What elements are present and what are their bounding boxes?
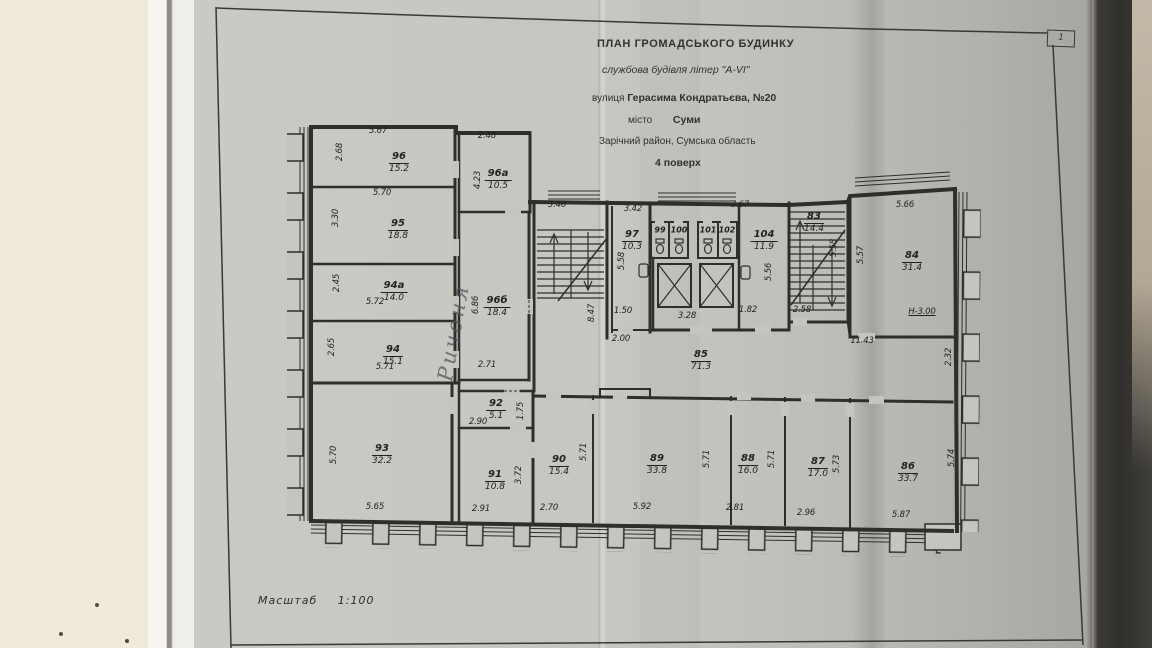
room-label: 8933.8 xyxy=(647,448,667,476)
dimension-label: 2.32 xyxy=(944,348,954,366)
dimension-label: 2.58 xyxy=(793,305,811,315)
dimension-label: 3.42 xyxy=(624,204,642,214)
wc-stall-number: 100 xyxy=(671,226,688,235)
dimension-label: 1.75 xyxy=(516,402,526,420)
dimension-label: 2.68 xyxy=(335,143,345,161)
dimension-label: 5.71 xyxy=(702,450,712,468)
dimension-label: 3.28 xyxy=(678,311,696,321)
dimension-label: 2.48 xyxy=(478,131,496,141)
dimension-label: 5.67 xyxy=(369,126,387,136)
room-label: 9710.3 xyxy=(622,224,642,252)
scale-value: 1:100 xyxy=(338,594,375,607)
dimension-label: 2.65 xyxy=(327,338,337,356)
dimension-label: 5.70 xyxy=(329,446,339,464)
dimension-label: 5.71 xyxy=(376,362,394,372)
room-label: 96б18.4 xyxy=(484,290,511,318)
dimension-label: 2.81 xyxy=(726,503,744,513)
dimension-label: 3.67 xyxy=(731,200,749,210)
dimension-label: 2.70 xyxy=(540,503,558,513)
dimension-label: 2.45 xyxy=(332,274,342,292)
dimension-label: 11.43 xyxy=(850,336,873,346)
plan-title: ПЛАН ГРОМАДСЬКОГО БУДИНКУ xyxy=(597,38,794,50)
wc-stall-number: 102 xyxy=(719,226,736,235)
dimension-label: 5.66 xyxy=(896,200,914,210)
room-label: 9110.8 xyxy=(485,464,505,492)
dimension-label: 8.47 xyxy=(587,304,597,322)
dimension-label: 3.72 xyxy=(514,466,524,484)
dimension-label: 5.71 xyxy=(579,443,589,461)
dimension-label: 3.30 xyxy=(331,209,341,227)
dimension-label: 5.58 xyxy=(617,252,627,270)
city-value: Суми xyxy=(673,114,701,126)
wc-stall-number: 101 xyxy=(700,226,717,235)
room-label: 8717.0 xyxy=(808,451,828,479)
city-label: місто xyxy=(628,115,652,126)
room-label: 9015.4 xyxy=(549,449,569,477)
dimension-label: 5.56 xyxy=(764,263,774,281)
dimension-label: 5.74 xyxy=(947,449,957,467)
dimension-label: 1.82 xyxy=(739,305,757,315)
room-label: 8571.3 xyxy=(691,344,711,372)
dimension-label: 6.86 xyxy=(471,296,481,314)
dimension-label: 5.65 xyxy=(366,502,384,512)
scale-label: Масштаб xyxy=(258,594,317,607)
room-label: 8431.4 xyxy=(902,245,922,273)
dimension-label: 5.72 xyxy=(366,297,384,307)
wc-stall-number: 99 xyxy=(654,226,665,235)
room-label: 8816.0 xyxy=(738,448,758,476)
room-label: 96а10.5 xyxy=(485,163,512,191)
room-label: 8633.7 xyxy=(898,456,918,484)
room-label: 94а14.0 xyxy=(381,275,408,303)
dimension-label: 4.23 xyxy=(473,171,483,189)
street-value: Герасима Кондратьєва, №20 xyxy=(627,92,776,104)
dimension-label: 5.70 xyxy=(373,188,391,198)
dimension-label: 5.92 xyxy=(633,502,651,512)
room-label: 10411.9 xyxy=(751,224,778,252)
dimension-label: Н-3.00 xyxy=(908,307,935,317)
floor-line: 4 поверх xyxy=(655,157,701,169)
dimension-label: 2.96 xyxy=(797,508,815,518)
district-line: Зарічний район, Сумська область xyxy=(599,136,756,147)
dimension-label: 5.87 xyxy=(892,510,910,520)
dimension-label: 2.00 xyxy=(612,334,630,344)
plan-labels: 9615.29518.894а14.09415.19332.296а10.596… xyxy=(0,0,1152,648)
room-label: 8314.4 xyxy=(804,206,824,234)
dimension-label: 2.71 xyxy=(478,360,496,370)
dimension-label: 2.91 xyxy=(472,504,490,514)
sheet-corner-number: 1 xyxy=(1047,30,1076,48)
dimension-label: 1.50 xyxy=(614,306,632,316)
dimension-label: 5.57 xyxy=(856,246,866,264)
dimension-label: 3.40 xyxy=(548,200,566,210)
building-subtitle: службова будівля літер "А-VI" xyxy=(602,64,750,76)
dimension-label: 5.73 xyxy=(832,455,842,473)
street-label: вулиця xyxy=(592,93,624,104)
city-line: місто Суми xyxy=(628,114,700,126)
scale-line: Масштаб 1:100 xyxy=(258,594,374,607)
dimension-label: 5.58 xyxy=(829,239,839,257)
dimension-label: 2.90 xyxy=(469,417,487,427)
room-label: 9615.2 xyxy=(389,146,409,174)
dimension-label: 5.71 xyxy=(767,450,777,468)
room-label: 9518.8 xyxy=(388,213,408,241)
room-label: 925.1 xyxy=(486,393,506,421)
street-line: вулиця Герасима Кондратьєва, №20 xyxy=(592,92,776,104)
room-label: 9332.2 xyxy=(372,438,392,466)
